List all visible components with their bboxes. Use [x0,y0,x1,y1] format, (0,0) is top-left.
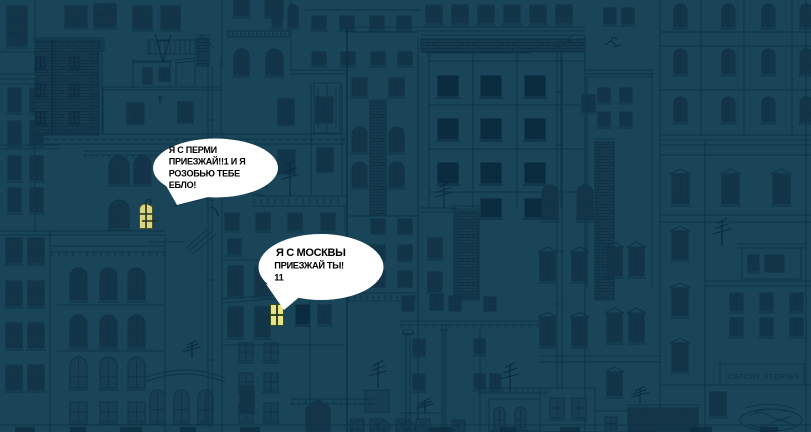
svg-text:11: 11 [274,273,283,283]
svg-text:ЕБЛО!: ЕБЛО! [169,180,197,190]
svg-text:CATCHY STORIES: CATCHY STORIES [728,374,800,381]
svg-text:ПРИЕЗЖАЙ!!1 И Я: ПРИЕЗЖАЙ!!1 И Я [169,156,246,167]
svg-text:Я С ПЕРМИ: Я С ПЕРМИ [169,145,217,155]
svg-text:Я С МОСКВЫ: Я С МОСКВЫ [276,247,346,259]
svg-text:ПРИЕЗЖАЙ ТЫ!: ПРИЕЗЖАЙ ТЫ! [274,260,344,271]
svg-text:РОЗОБЬЮ ТЕБЕ: РОЗОБЬЮ ТЕБЕ [169,168,240,178]
